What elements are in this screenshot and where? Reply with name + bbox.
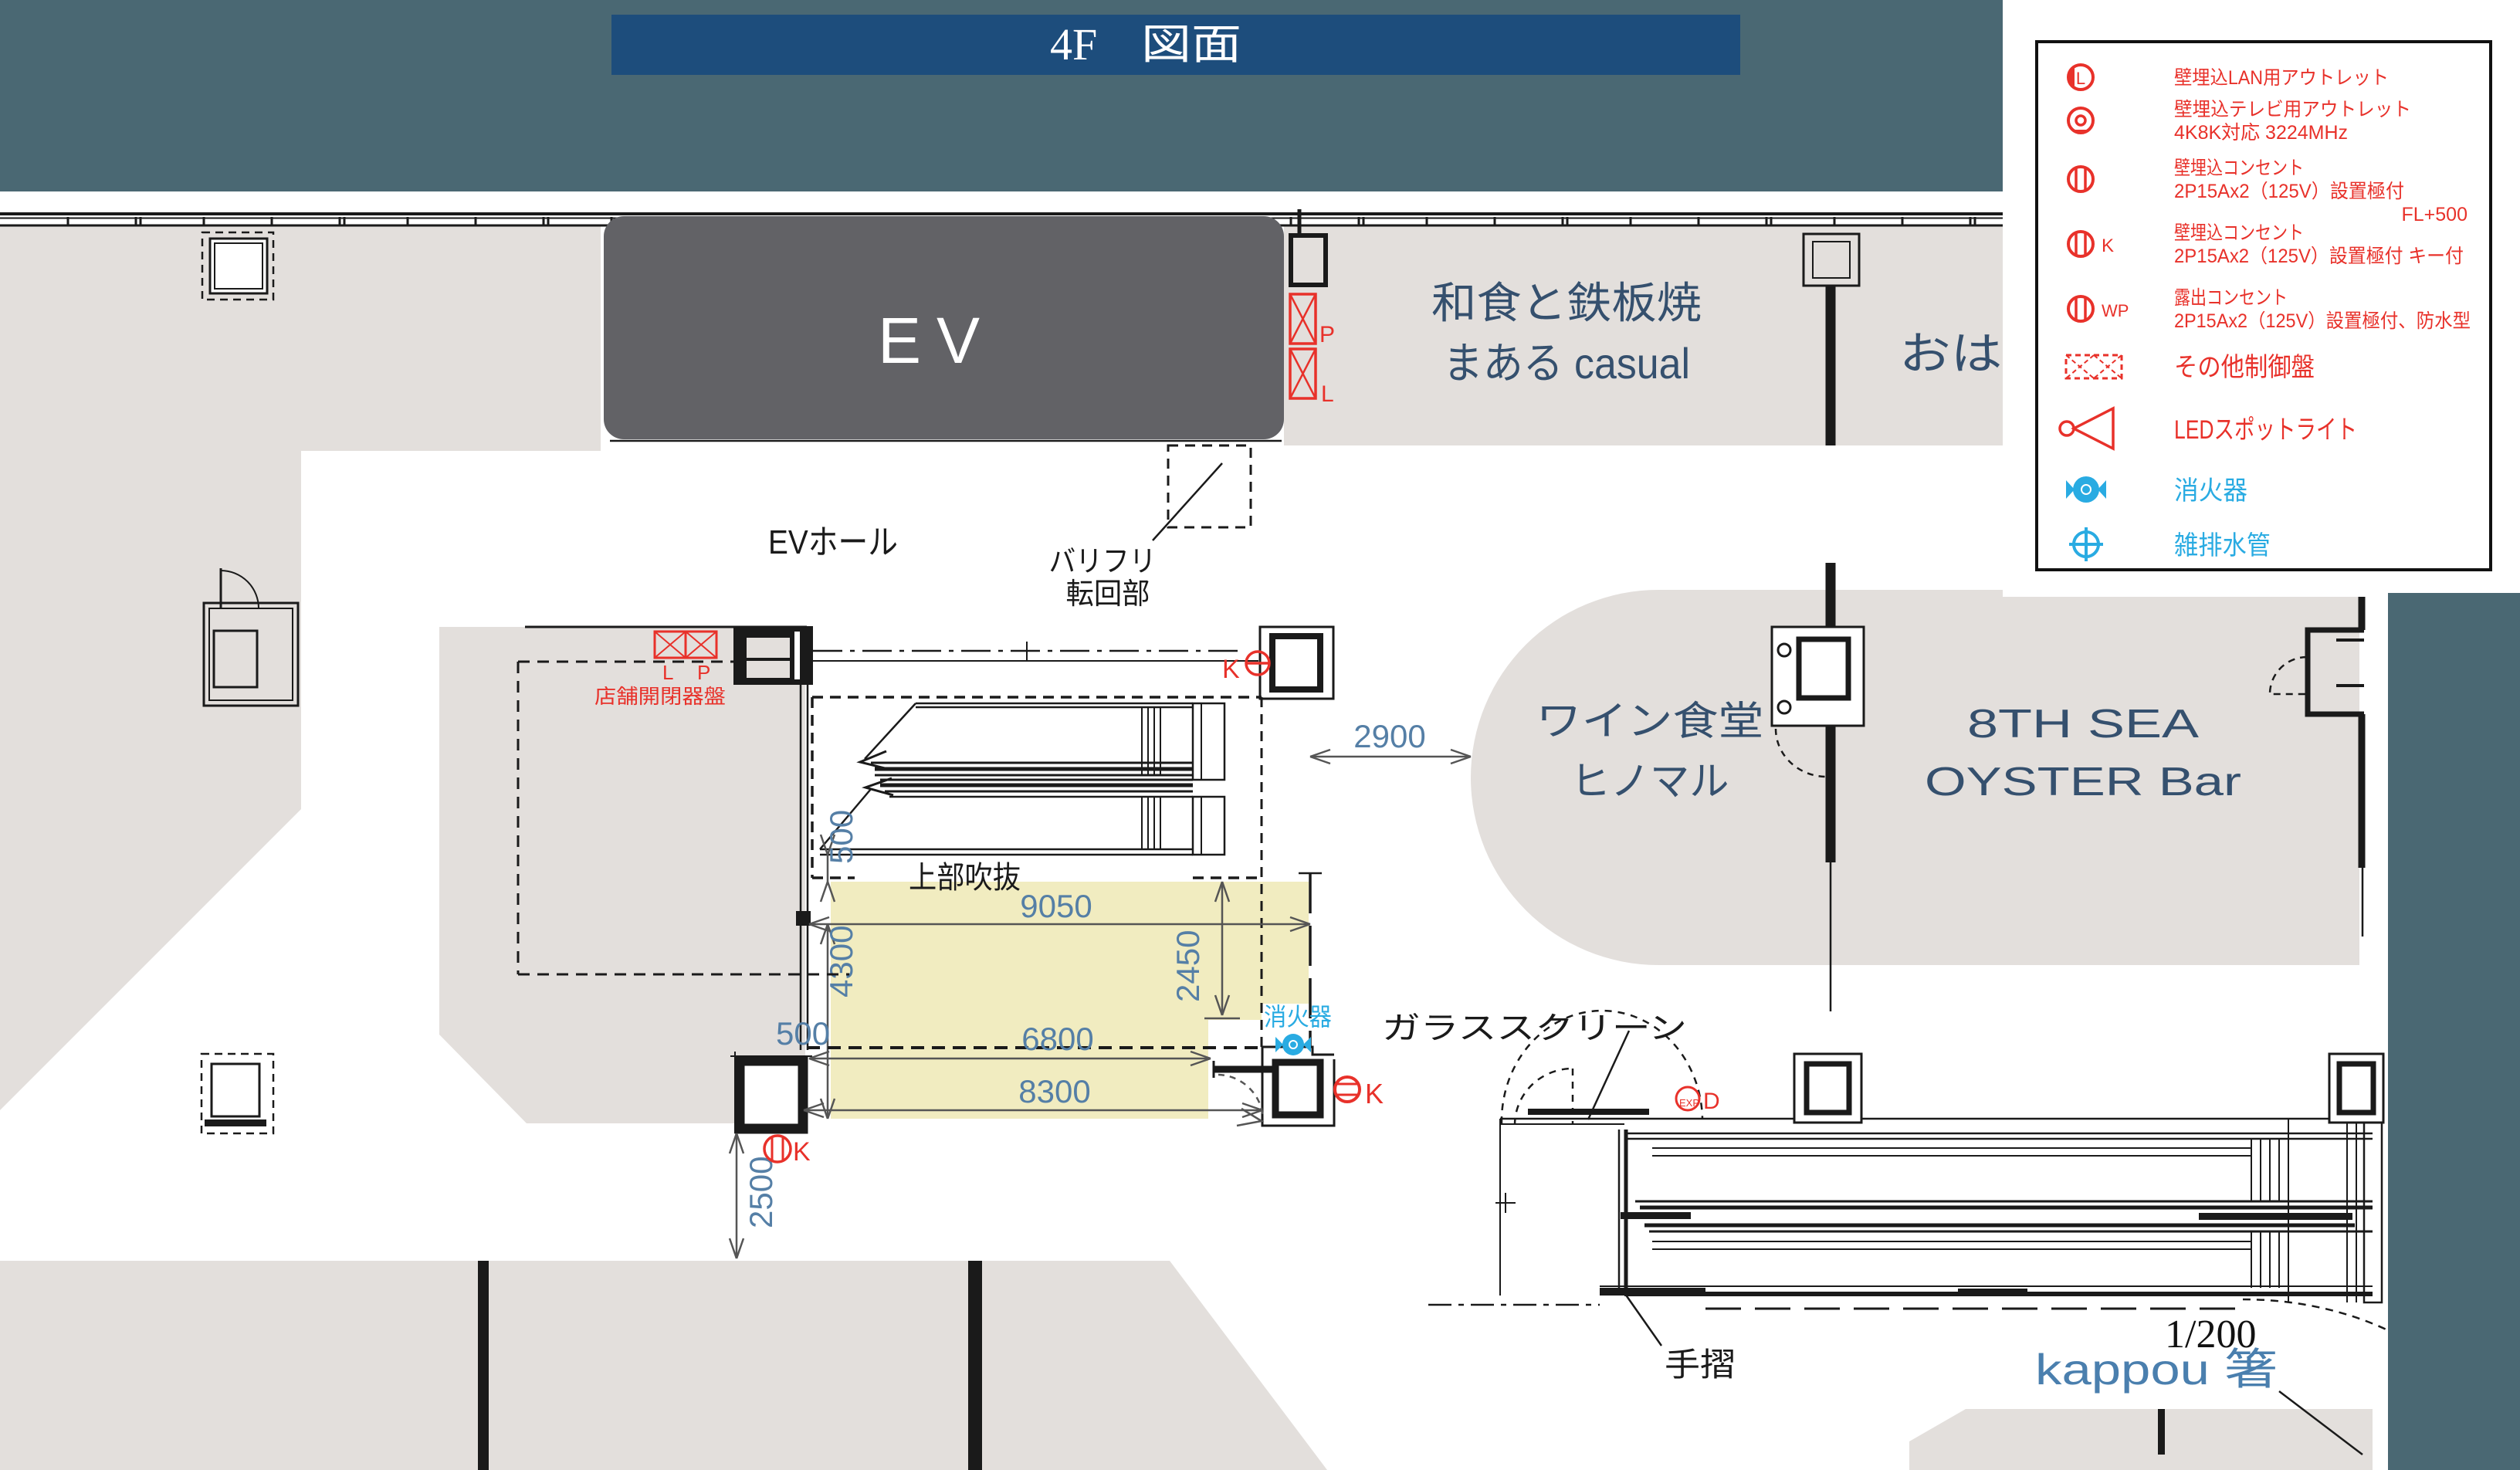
- svg-text:8300: 8300: [1018, 1073, 1090, 1109]
- svg-text:壁埋込LAN用アウトレット: 壁埋込LAN用アウトレット: [2174, 67, 2389, 89]
- svg-text:2500: 2500: [743, 1157, 779, 1228]
- svg-text:P: P: [1319, 322, 1335, 347]
- svg-text:ヒノマル: ヒノマル: [1571, 760, 1729, 804]
- svg-text:L: L: [2076, 69, 2085, 88]
- svg-text:消火器: 消火器: [2174, 476, 2247, 506]
- svg-text:2P15Ax2（125V）設置極付 キー付: 2P15Ax2（125V）設置極付 キー付: [2174, 246, 2464, 267]
- svg-text:1/200: 1/200: [2165, 1312, 2256, 1357]
- svg-text:手摺: 手摺: [1665, 1346, 1736, 1383]
- svg-text:2P15Ax2（125V）設置極付: 2P15Ax2（125V）設置極付: [2174, 181, 2404, 202]
- svg-text:4K8K対応 3224MHz: 4K8K対応 3224MHz: [2174, 122, 2348, 144]
- svg-text:EXP: EXP: [1679, 1097, 1699, 1109]
- svg-text:500: 500: [776, 1015, 830, 1052]
- svg-text:9050: 9050: [1020, 888, 1092, 924]
- svg-text:K: K: [793, 1137, 811, 1167]
- svg-text:L: L: [1321, 381, 1334, 407]
- svg-text:LEDスポットライト: LEDスポットライト: [2174, 415, 2357, 445]
- svg-text:4300: 4300: [823, 926, 859, 997]
- svg-text:D: D: [1703, 1089, 1720, 1114]
- svg-text:4F: 4F: [1050, 19, 1097, 69]
- svg-text:8TH SEA: 8TH SEA: [1967, 702, 2199, 747]
- svg-text:OYSTER Bar: OYSTER Bar: [1925, 760, 2241, 804]
- svg-text:その他制御盤: その他制御盤: [2174, 353, 2315, 382]
- svg-text:EV: EV: [878, 304, 995, 377]
- svg-text:2450: 2450: [1170, 930, 1206, 1002]
- svg-text:まある casual: まある casual: [1443, 339, 1690, 388]
- svg-text:転回部: 転回部: [1066, 578, 1150, 611]
- svg-text:K: K: [2102, 235, 2114, 256]
- svg-text:WP: WP: [2102, 301, 2129, 320]
- svg-text:雑排水管: 雑排水管: [2174, 531, 2271, 561]
- svg-text:K: K: [1365, 1078, 1384, 1109]
- svg-text:壁埋込テレビ用アウトレット: 壁埋込テレビ用アウトレット: [2174, 99, 2411, 120]
- svg-text:上部吹抜: 上部吹抜: [909, 861, 1021, 895]
- svg-text:500: 500: [823, 810, 859, 864]
- svg-text:壁埋込コンセント: 壁埋込コンセント: [2174, 222, 2304, 244]
- svg-text:壁埋込コンセント: 壁埋込コンセント: [2174, 157, 2304, 179]
- svg-text:EVホール: EVホール: [768, 523, 898, 561]
- svg-text:図面: 図面: [1141, 22, 1241, 68]
- svg-text:P: P: [697, 661, 710, 684]
- svg-text:L: L: [662, 661, 673, 684]
- svg-text:店舗開閉器盤: 店舗開閉器盤: [594, 685, 726, 708]
- svg-text:ワイン食堂: ワイン食堂: [1536, 699, 1764, 744]
- svg-text:6800: 6800: [1021, 1021, 1093, 1057]
- svg-text:バリフリ: バリフリ: [1049, 546, 1157, 578]
- svg-text:FL+500: FL+500: [2402, 204, 2468, 225]
- svg-text:2900: 2900: [1353, 718, 1425, 754]
- svg-text:消火器: 消火器: [1264, 1003, 1332, 1031]
- svg-text:2P15Ax2（125V）設置極付、防水型: 2P15Ax2（125V）設置極付、防水型: [2174, 310, 2471, 332]
- svg-text:和食と鉄板焼: 和食と鉄板焼: [1431, 279, 1702, 327]
- svg-text:露出コンセント: 露出コンセント: [2174, 287, 2288, 309]
- svg-text:K: K: [1222, 655, 1240, 684]
